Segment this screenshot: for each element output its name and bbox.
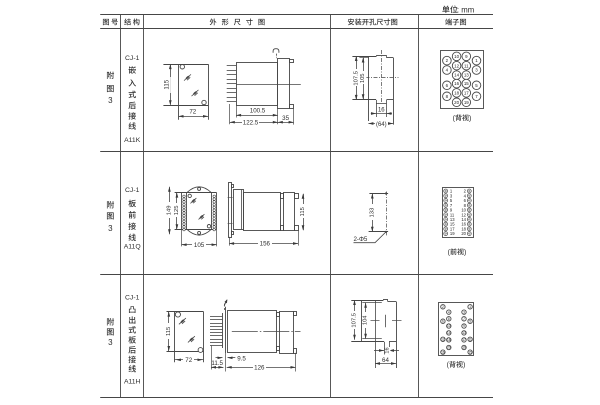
svg-text:16: 16 (378, 108, 385, 114)
svg-text:133: 133 (369, 208, 375, 218)
svg-text:18: 18 (447, 338, 451, 342)
svg-text:5: 5 (469, 319, 471, 323)
svg-text:): ) (464, 249, 466, 256)
svg-text:2: 2 (442, 305, 444, 309)
svg-text:107.5: 107.5 (352, 313, 358, 328)
svg-text:4: 4 (448, 310, 450, 314)
svg-text:156: 156 (260, 241, 271, 248)
svg-text:12: 12 (441, 338, 445, 342)
svg-text:122.5: 122.5 (243, 119, 259, 126)
svg-text:14: 14 (447, 331, 451, 335)
svg-text:11: 11 (468, 338, 472, 342)
svg-text:9.5: 9.5 (237, 355, 246, 362)
svg-text:2-Φ5: 2-Φ5 (353, 236, 367, 243)
svg-text:115: 115 (163, 79, 170, 89)
svg-text:1: 1 (469, 305, 471, 309)
svg-text:CJ-1: CJ-1 (125, 55, 140, 62)
svg-text:14: 14 (454, 73, 459, 78)
svg-text:13: 13 (464, 73, 469, 78)
svg-text:125: 125 (174, 206, 180, 216)
svg-text:A11Q: A11Q (124, 243, 141, 250)
svg-text:8: 8 (448, 317, 450, 321)
svg-text:A11H: A11H (124, 379, 141, 386)
svg-text:149: 149 (167, 206, 173, 216)
svg-text:15: 15 (468, 350, 472, 354)
svg-text:3: 3 (108, 338, 113, 347)
svg-text:35: 35 (282, 115, 289, 122)
svg-text:20: 20 (447, 346, 451, 350)
svg-text:100.5: 100.5 (250, 107, 266, 114)
svg-text:7: 7 (463, 317, 465, 321)
svg-text:mm: mm (461, 5, 474, 14)
svg-text:12: 12 (454, 63, 459, 68)
svg-text:16: 16 (384, 347, 390, 353)
svg-text:19: 19 (464, 100, 469, 105)
svg-text:16: 16 (454, 81, 459, 86)
svg-text:10: 10 (454, 54, 459, 59)
svg-text:20: 20 (461, 231, 466, 236)
svg-text:105: 105 (194, 242, 205, 249)
svg-text:10: 10 (447, 324, 451, 328)
svg-text:17: 17 (464, 91, 469, 96)
svg-text:107.5: 107.5 (353, 71, 359, 86)
svg-text:16: 16 (441, 350, 445, 354)
svg-text:): ) (463, 362, 465, 369)
svg-text:11.5: 11.5 (211, 360, 223, 367)
svg-text::: : (457, 5, 459, 14)
svg-text:3: 3 (108, 96, 113, 105)
svg-text:64: 64 (382, 357, 389, 364)
svg-text:A11K: A11K (124, 137, 141, 144)
svg-text:115: 115 (300, 207, 306, 216)
svg-text:(64): (64) (376, 122, 387, 128)
svg-text:19: 19 (462, 346, 466, 350)
svg-text:(: ( (448, 249, 451, 256)
svg-text:19: 19 (450, 231, 455, 236)
svg-text:104: 104 (363, 315, 369, 325)
svg-text:13: 13 (462, 331, 466, 335)
svg-text:3: 3 (108, 224, 113, 233)
svg-text:CJ-1: CJ-1 (125, 187, 140, 194)
svg-text:18: 18 (454, 91, 459, 96)
svg-text:CJ-1: CJ-1 (125, 294, 140, 301)
svg-text:17: 17 (462, 338, 466, 342)
svg-text:72: 72 (189, 109, 196, 116)
svg-text:9: 9 (463, 324, 465, 328)
svg-text:72: 72 (185, 357, 192, 364)
svg-text:(: ( (447, 362, 450, 369)
svg-text:105: 105 (360, 73, 366, 83)
svg-text:6: 6 (442, 319, 444, 323)
svg-text:20: 20 (454, 100, 459, 105)
svg-text:15: 15 (464, 81, 469, 86)
svg-text:(: ( (453, 115, 456, 122)
svg-text:11: 11 (464, 63, 469, 68)
svg-text:115: 115 (166, 327, 172, 336)
svg-text:3: 3 (463, 310, 465, 314)
svg-text:126: 126 (254, 365, 265, 372)
svg-text:): ) (469, 115, 471, 122)
